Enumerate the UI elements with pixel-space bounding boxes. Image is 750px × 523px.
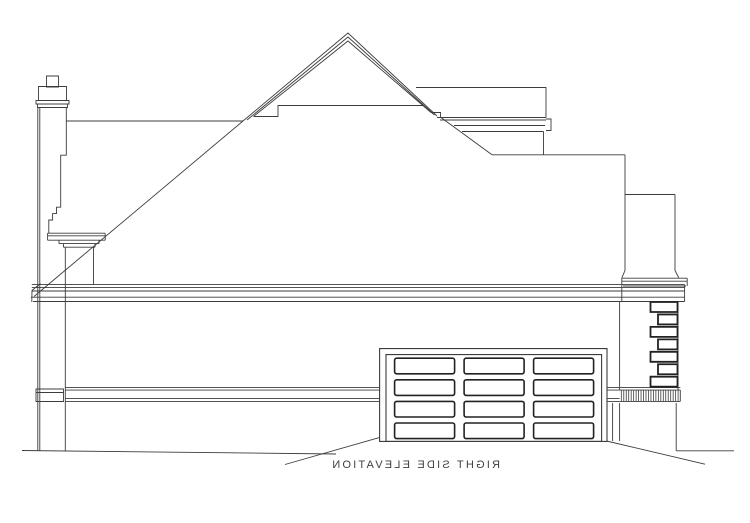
rear-wing-step-outline — [492, 155, 679, 278]
left-hip-roof-edge — [32, 121, 243, 302]
wing-outer-corner — [675, 195, 679, 278]
drawing-caption: RIGHT SIDE ELEVATION — [330, 459, 500, 475]
eave-cornice-band — [31, 278, 687, 301]
gable-rake-outer — [243, 33, 437, 121]
belt-course-band — [65, 388, 680, 402]
rear-upper-block — [416, 88, 551, 155]
chimney-cap — [39, 87, 67, 101]
chimney-crown — [36, 101, 69, 105]
driveway-slope-right — [607, 441, 706, 464]
rear-hip-slope — [441, 118, 492, 155]
left-cornice-return — [48, 233, 106, 450]
eave-band-lines — [31, 285, 685, 302]
elevation-line-drawing — [0, 0, 750, 523]
rear-block-frieze-bands — [437, 118, 546, 132]
garage-door-inner-frame — [386, 355, 602, 442]
rear-block-outline — [416, 88, 546, 118]
chimney-crown-lower — [38, 104, 68, 108]
chimney — [36, 76, 69, 451]
chimney-right-edge-corbel — [49, 108, 67, 234]
gable-rake-middle — [247, 37, 435, 120]
garage-door-panels — [395, 358, 594, 438]
gable-left-cornice-return — [254, 106, 424, 117]
chimney-flue — [47, 76, 59, 87]
belt-band-left — [65, 388, 379, 402]
front-gable-roof — [243, 33, 441, 121]
chimney-left-edge — [38, 108, 40, 451]
wing-inner-corner — [622, 155, 625, 278]
rear-block-band-endcap — [546, 119, 551, 131]
corner-quoins — [651, 302, 678, 387]
garage-door — [380, 349, 607, 442]
elevation-sheet: RIGHT SIDE ELEVATION — [0, 0, 750, 523]
garage-jamb-trim-lower — [613, 403, 620, 441]
grade-line-left — [22, 451, 336, 455]
brick-soldier-band-hatch — [621, 390, 678, 401]
